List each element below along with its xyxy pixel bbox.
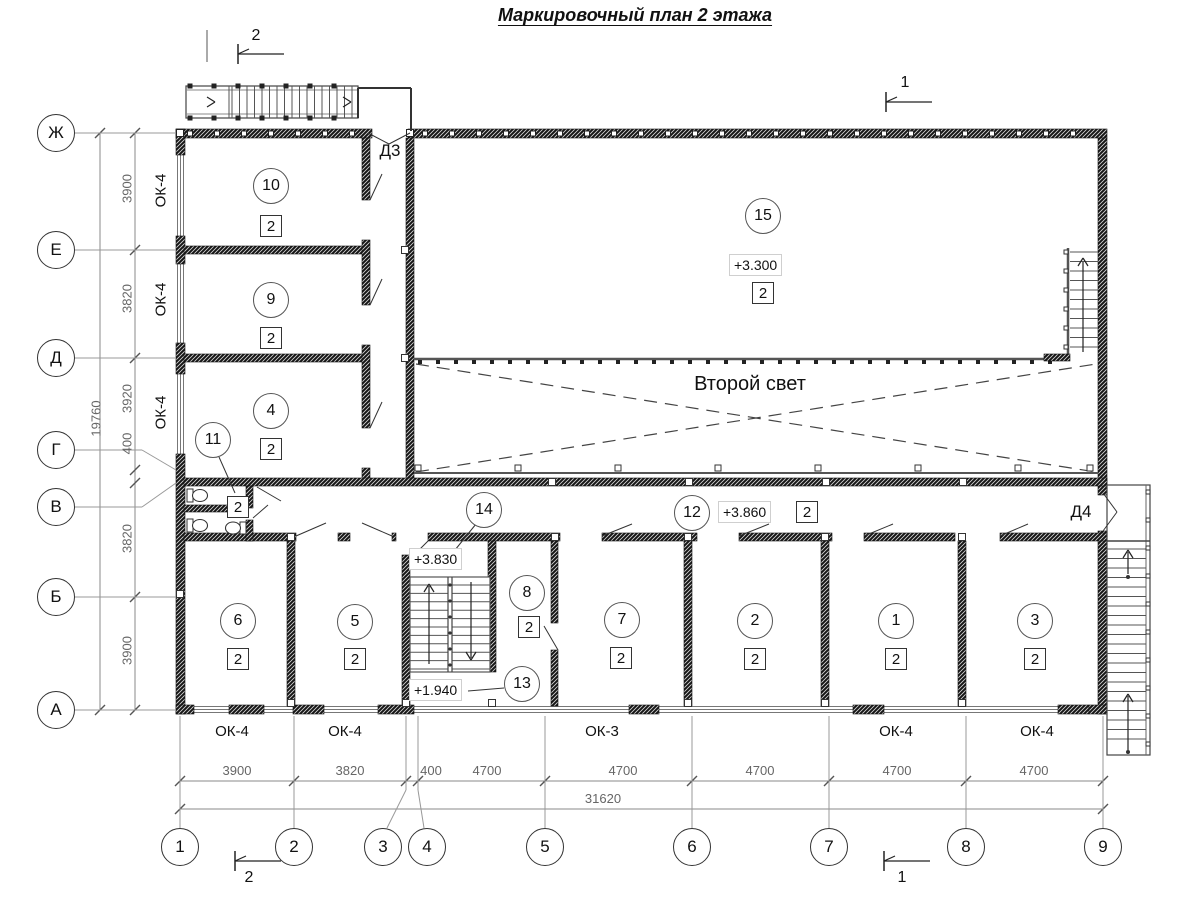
room-type-12: 2: [796, 501, 818, 523]
post-square: [977, 361, 980, 364]
post-square: [617, 361, 620, 364]
room-elevation-15: +3.300: [729, 254, 782, 276]
plan-line: [257, 487, 281, 501]
room-badge-11: 11: [195, 422, 231, 458]
door-label-d4: Д4: [1060, 502, 1102, 522]
dim-bottom-7: 4700: [867, 763, 927, 778]
axis-col-2: 2: [275, 828, 313, 866]
room-type-3: 2: [1024, 648, 1046, 670]
post-square: [1146, 546, 1150, 550]
wall-segment: [408, 129, 1107, 138]
post-square: [1146, 714, 1150, 718]
post-square: [1071, 131, 1076, 136]
wall-segment: [362, 345, 370, 428]
dim-bottom-2: 3820: [320, 763, 380, 778]
post-square: [869, 361, 872, 364]
wall-segment: [1058, 705, 1089, 714]
post-square: [851, 361, 854, 364]
post-square: [1064, 269, 1068, 273]
toilet-bowl: [193, 520, 208, 532]
post-square: [504, 131, 509, 136]
post-square: [455, 361, 458, 364]
axis-row-v: В: [37, 488, 75, 526]
room-elevation-12: +3.860: [718, 501, 771, 523]
post-square: [693, 131, 698, 136]
post-square: [284, 116, 288, 120]
window-label-bottom-2: ОК-4: [310, 723, 380, 740]
post-square: [828, 131, 833, 136]
room-badge-1: 1: [878, 603, 914, 639]
plan-dot: [1126, 750, 1130, 754]
stair-main: [410, 577, 490, 672]
room-badge-7: 7: [604, 602, 640, 638]
post-square: [419, 361, 422, 364]
plan-dot: [448, 583, 451, 586]
post-square: [1015, 465, 1021, 471]
window-label-left-1: ОК-4: [153, 161, 170, 221]
wall-segment: [1044, 354, 1070, 361]
post-square: [990, 131, 995, 136]
post-square: [671, 361, 674, 364]
post-square: [963, 131, 968, 136]
window-label-left-3: ОК-4: [153, 383, 170, 443]
room-badge-13: 13: [504, 666, 540, 702]
post-square: [1146, 630, 1150, 634]
wall-segment: [176, 236, 185, 264]
post-square: [599, 361, 602, 364]
room-badge-3: 3: [1017, 603, 1053, 639]
post-square: [959, 700, 966, 707]
post-square: [308, 84, 312, 88]
window-label-bottom-4: ОК-4: [861, 723, 931, 740]
axis-row-zh: Ж: [37, 114, 75, 152]
post-square: [215, 131, 220, 136]
post-square: [689, 361, 692, 364]
plan-line: [142, 450, 176, 470]
post-square: [1146, 686, 1150, 690]
post-square: [188, 131, 193, 136]
axis-col-7: 7: [810, 828, 848, 866]
room-badge-8: 8: [509, 575, 545, 611]
post-square: [332, 84, 336, 88]
post-square: [635, 361, 638, 364]
post-square: [941, 361, 944, 364]
post-square: [260, 84, 264, 88]
room-type-2: 2: [744, 648, 766, 670]
post-square: [685, 700, 692, 707]
axis-row-b: Б: [37, 578, 75, 616]
wall-segment: [392, 533, 396, 541]
post-square: [527, 361, 530, 364]
plan-dot: [448, 663, 451, 666]
post-square: [639, 131, 644, 136]
axis-row-d: Д: [37, 339, 75, 377]
plan-line: [238, 49, 249, 54]
post-square: [909, 131, 914, 136]
post-square: [915, 465, 921, 471]
wall-segment: [864, 533, 955, 541]
post-square: [581, 361, 584, 364]
post-square: [686, 479, 693, 486]
wall-segment: [176, 454, 185, 714]
post-square: [1064, 288, 1068, 292]
wall-segment: [821, 541, 829, 706]
wall-segment: [958, 541, 966, 706]
plan-line: [142, 483, 176, 507]
wall-segment: [176, 343, 185, 374]
axis-col-4: 4: [408, 828, 446, 866]
axis-col-5: 5: [526, 828, 564, 866]
dim-left-4: 400: [120, 414, 135, 474]
post-square: [236, 84, 240, 88]
post-square: [725, 361, 728, 364]
post-square: [747, 131, 752, 136]
plan-line: [219, 457, 235, 493]
plan-line: [253, 505, 268, 518]
dim-left-2: 3820: [120, 269, 135, 329]
dim-bottom-3: 400: [401, 763, 461, 778]
plan-line: [370, 174, 382, 200]
post-square: [296, 131, 301, 136]
wall-segment: [1089, 705, 1107, 714]
plan-line: [296, 523, 326, 536]
post-square: [761, 361, 764, 364]
room-badge-2: 2: [737, 603, 773, 639]
section-mark-1-top: 1: [893, 74, 917, 92]
post-square: [1146, 574, 1150, 578]
room-badge-15: 15: [745, 198, 781, 234]
room-badge-9: 9: [253, 282, 289, 318]
post-square: [1146, 658, 1150, 662]
wall-segment: [551, 541, 558, 623]
post-square: [615, 465, 621, 471]
plan-line: [884, 856, 895, 861]
post-square: [323, 131, 328, 136]
post-square: [685, 534, 692, 541]
post-square: [260, 116, 264, 120]
post-square: [1031, 361, 1034, 364]
post-square: [350, 131, 355, 136]
post-square: [450, 131, 455, 136]
plan-dot: [1126, 575, 1130, 579]
section-mark-2-bottom: 2: [237, 869, 261, 887]
section-mark-1-bottom: 1: [890, 869, 914, 887]
dim-bottom-8: 4700: [1004, 763, 1064, 778]
post-square: [1146, 602, 1150, 606]
post-square: [188, 116, 192, 120]
post-square: [332, 116, 336, 120]
room-type-11: 2: [227, 496, 249, 518]
wall-segment: [1000, 533, 1107, 541]
dim-bottom-1: 3900: [207, 763, 267, 778]
room-type-9: 2: [260, 327, 282, 349]
axis-col-6: 6: [673, 828, 711, 866]
wall-segment: [176, 705, 194, 714]
post-square: [1064, 345, 1068, 349]
toilet-bowl: [193, 490, 208, 502]
post-square: [743, 361, 746, 364]
plan-line: [235, 856, 246, 861]
post-square: [995, 361, 998, 364]
post-square: [715, 465, 721, 471]
post-square: [1087, 465, 1093, 471]
room-type-15: 2: [752, 282, 774, 304]
post-square: [774, 131, 779, 136]
plan-dot: [448, 647, 451, 650]
post-square: [473, 361, 476, 364]
window-label-bottom-5: ОК-4: [1002, 723, 1072, 740]
wall-segment: [246, 520, 253, 541]
floor-plan: Маркировочный план 2 этажа Второй свет Д…: [0, 0, 1200, 900]
post-square: [402, 355, 409, 362]
room-badge-5: 5: [337, 604, 373, 640]
toilet-bowl: [226, 522, 241, 534]
axis-col-3: 3: [364, 828, 402, 866]
post-square: [437, 361, 440, 364]
plan-dot: [448, 631, 451, 634]
post-square: [284, 84, 288, 88]
post-square: [612, 131, 617, 136]
room-type-10: 2: [260, 215, 282, 237]
post-square: [177, 591, 184, 598]
axis-row-g: Г: [37, 431, 75, 469]
room-badge-12: 12: [674, 495, 710, 531]
wall-segment: [229, 705, 264, 714]
wall-segment: [1098, 531, 1107, 714]
post-square: [552, 534, 559, 541]
post-square: [545, 361, 548, 364]
wall-segment: [853, 705, 884, 714]
plan-line: [886, 97, 897, 102]
post-square: [801, 131, 806, 136]
post-square: [960, 479, 967, 486]
post-square: [887, 361, 890, 364]
post-square: [308, 116, 312, 120]
wall-segment: [406, 138, 414, 485]
room-type-8: 2: [518, 616, 540, 638]
post-square: [653, 361, 656, 364]
axis-row-e: Е: [37, 231, 75, 269]
dim-left-total: 19760: [89, 389, 104, 449]
post-square: [1064, 307, 1068, 311]
post-square: [531, 131, 536, 136]
room-badge-4: 4: [253, 393, 289, 429]
wall-segment: [684, 541, 692, 706]
plan-line: [362, 523, 392, 536]
room-type-6: 2: [227, 648, 249, 670]
post-square: [423, 131, 428, 136]
section-mark-2-top: 2: [244, 27, 268, 45]
post-square: [491, 361, 494, 364]
post-square: [905, 361, 908, 364]
wall-segment: [629, 705, 659, 714]
plan-line: [207, 97, 215, 102]
post-square: [269, 131, 274, 136]
wall-segment: [428, 533, 560, 541]
post-square: [822, 534, 829, 541]
external-stair-top: [186, 86, 358, 118]
post-square: [509, 361, 512, 364]
plan-line: [207, 102, 215, 107]
wall-segment: [184, 246, 364, 254]
dim-bottom-6: 4700: [730, 763, 790, 778]
atrium-label: Второй свет: [680, 373, 820, 396]
post-square: [489, 700, 496, 707]
room-type-5: 2: [344, 648, 366, 670]
post-square: [242, 131, 247, 136]
plan-dot: [448, 615, 451, 618]
wall-segment: [338, 533, 350, 541]
post-square: [288, 534, 295, 541]
room-badge-6: 6: [220, 603, 256, 639]
post-square: [1146, 518, 1150, 522]
axis-col-8: 8: [947, 828, 985, 866]
post-square: [959, 361, 962, 364]
post-square: [558, 131, 563, 136]
post-square: [1044, 131, 1049, 136]
post-square: [707, 361, 710, 364]
axis-col-1: 1: [161, 828, 199, 866]
post-square: [959, 534, 966, 541]
plan-line: [544, 626, 558, 650]
wall-segment: [287, 541, 295, 706]
post-square: [797, 361, 800, 364]
post-square: [1064, 250, 1068, 254]
wall-segment: [602, 533, 697, 541]
wall-segment: [551, 650, 558, 706]
room-type-7: 2: [610, 647, 632, 669]
post-square: [923, 361, 926, 364]
room-badge-14: 14: [466, 492, 502, 528]
post-square: [585, 131, 590, 136]
post-square: [563, 361, 566, 364]
plan-line: [370, 279, 382, 305]
post-square: [720, 131, 725, 136]
door-label-d3: Д3: [368, 141, 412, 161]
post-square: [236, 116, 240, 120]
dim-bottom-total: 31620: [573, 791, 633, 806]
post-square: [1017, 131, 1022, 136]
post-square: [833, 361, 836, 364]
post-square: [477, 131, 482, 136]
post-square: [1146, 742, 1150, 746]
room-elevation-14: +3.830: [409, 548, 462, 570]
axis-row-a: А: [37, 691, 75, 729]
plan-dot: [448, 599, 451, 602]
wall-segment: [293, 705, 324, 714]
post-square: [779, 361, 782, 364]
wall-segment: [362, 240, 370, 305]
post-square: [1013, 361, 1016, 364]
room-elevation-13: +1.940: [409, 679, 462, 701]
dim-bottom-5: 4700: [593, 763, 653, 778]
post-square: [936, 131, 941, 136]
post-square: [212, 84, 216, 88]
post-square: [822, 700, 829, 707]
post-square: [1146, 490, 1150, 494]
wall-segment: [184, 354, 364, 362]
post-square: [666, 131, 671, 136]
post-square: [515, 465, 521, 471]
room-badge-10: 10: [253, 168, 289, 204]
axis-col-9: 9: [1084, 828, 1122, 866]
room-type-1: 2: [885, 648, 907, 670]
post-square: [402, 247, 409, 254]
plan-line: [370, 402, 382, 428]
dim-bottom-4: 4700: [457, 763, 517, 778]
wall-segment: [739, 533, 832, 541]
dim-left-6: 3900: [120, 621, 135, 681]
window-label-bottom-1: ОК-4: [197, 723, 267, 740]
wall-segment: [184, 478, 1107, 486]
post-square: [177, 130, 184, 137]
wall-segment: [1098, 138, 1107, 495]
post-square: [882, 131, 887, 136]
post-square: [188, 84, 192, 88]
post-square: [1064, 326, 1068, 330]
post-square: [815, 465, 821, 471]
window-label-bottom-3: ОК-3: [567, 723, 637, 740]
post-square: [415, 465, 421, 471]
post-square: [288, 700, 295, 707]
post-square: [212, 116, 216, 120]
post-square: [855, 131, 860, 136]
post-square: [549, 479, 556, 486]
post-square: [823, 479, 830, 486]
window-label-left-2: ОК-4: [153, 270, 170, 330]
post-square: [815, 361, 818, 364]
room-type-4: 2: [260, 438, 282, 460]
plan-line: [468, 688, 504, 691]
page-title: Маркировочный план 2 этажа: [420, 5, 850, 26]
dim-left-1: 3900: [120, 159, 135, 219]
dim-left-5: 3820: [120, 509, 135, 569]
